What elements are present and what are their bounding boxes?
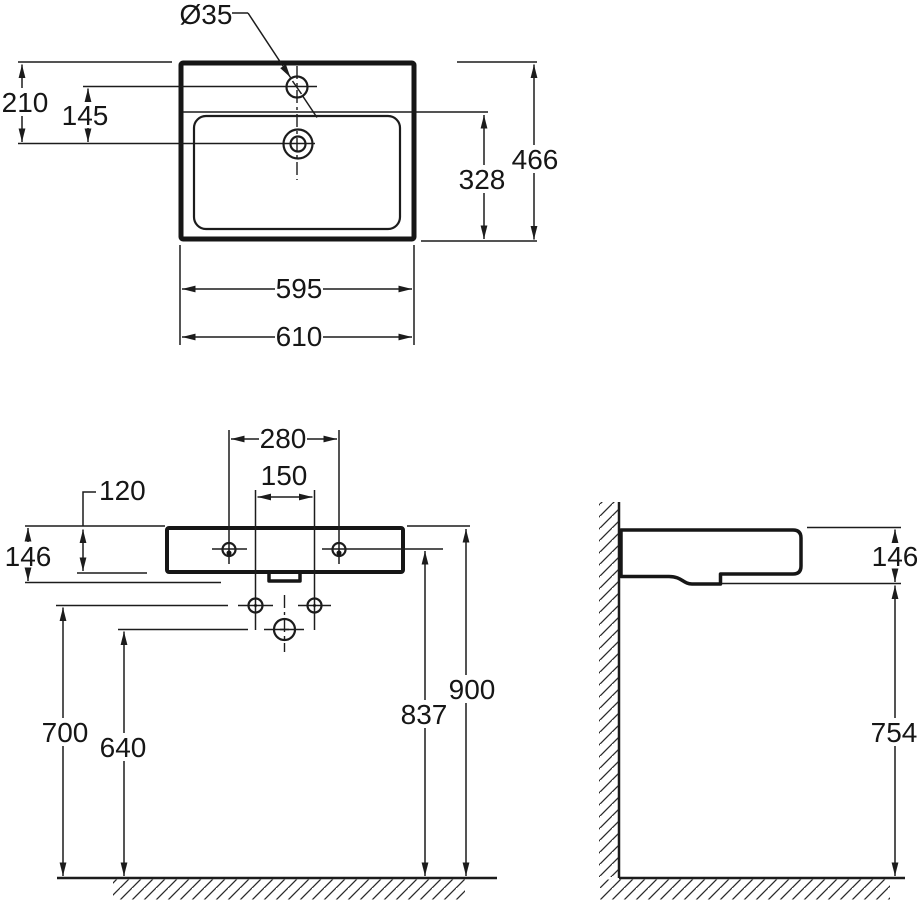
center-mark — [254, 604, 257, 607]
dim-label-inner-width: 595 — [276, 273, 323, 304]
spec-sheet: Ø35 210 145 328 466 595 610 — [0, 0, 917, 904]
dim-label-fixing-height: 837 — [401, 699, 448, 730]
drain-channel-notch — [269, 574, 300, 581]
dim-label-overall-depth: 466 — [512, 144, 559, 175]
dim-label-underside-clearance: 754 — [871, 717, 917, 748]
dim-label-rim-to-drain: 210 — [2, 87, 49, 118]
dim-label-overall-width: 610 — [276, 321, 323, 352]
dim-label-front-apron: 120 — [99, 475, 146, 506]
dim-label-supply-spacing: 150 — [261, 460, 308, 491]
dim-label-side-body-height: 146 — [872, 541, 917, 572]
dim-label-drain-height: 640 — [100, 732, 147, 763]
basin-front-outline — [167, 528, 403, 572]
dim-label-basin-depth: 328 — [459, 164, 506, 195]
dim-label-fixing-spacing: 280 — [260, 423, 307, 454]
dim-label-faucet-diameter: Ø35 — [180, 0, 233, 30]
floor-hatching — [113, 880, 465, 900]
technical-drawing: Ø35 210 145 328 466 595 610 — [0, 0, 917, 904]
fixing-hole-right-slot — [337, 551, 342, 556]
dim-label-supply-height: 700 — [42, 717, 89, 748]
dim-label-rim-height: 900 — [449, 674, 496, 705]
dim-label-faucet-to-drain: 145 — [62, 100, 109, 131]
dim-label-body-height: 146 — [5, 541, 52, 572]
center-mark — [313, 604, 316, 607]
paper-background — [0, 0, 917, 904]
wall-hatching — [599, 502, 618, 877]
floor-hatching — [600, 880, 890, 900]
fixing-hole-left-slot — [227, 551, 232, 556]
